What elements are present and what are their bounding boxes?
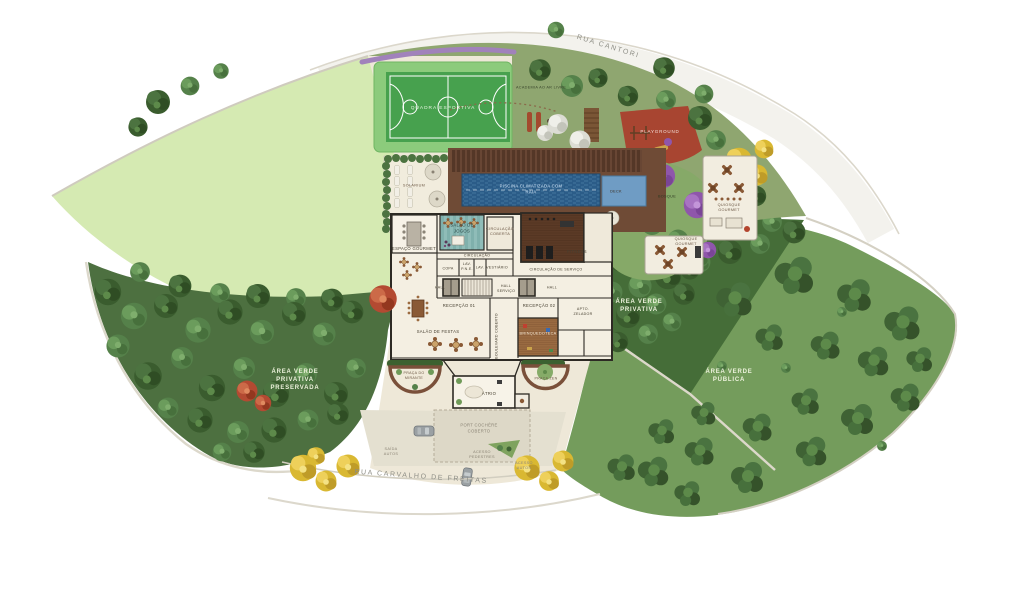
label-reception-1: RECEPÇÃO 01 <box>443 303 476 309</box>
label-deck: DECK <box>610 189 622 194</box>
label-games-room: SALÃO DE JOGOS <box>445 222 479 233</box>
label-reception-2: RECEPÇÃO 02 <box>523 303 556 309</box>
label-gourmet-room: ESPAÇO GOURMET <box>392 246 436 252</box>
label-service-circulation: CIRCULAÇÃO DE SERVIÇO <box>530 268 583 273</box>
label-car-entry: ACESSO AUTOS <box>510 461 538 471</box>
label-hall-right: HALL <box>547 286 557 291</box>
label-green-right-private: ÁREA VERDE PRIVATIVA <box>612 298 666 314</box>
label-sports-court: QUADRA ESPORTIVA <box>411 106 476 112</box>
label-zen-square: PRAÇA ZEN <box>534 377 557 382</box>
label-gourmet-kiosk-upper: QUIOSQUE GOURMET <box>709 203 749 213</box>
label-covered-circulation: CIRCULAÇÃO COBERTA <box>485 227 515 237</box>
label-port-cochere: PORT COCHÈRE COBERTO <box>457 422 501 433</box>
label-atrium: ÁTRIO <box>482 391 496 397</box>
site-plan: RUA CANTORI RUA CARVALHO DE FREITAS ÁREA… <box>0 0 1024 606</box>
label-locker-room: VESTIÁRIO <box>486 266 508 271</box>
label-pool: PISCINA CLIMATIZADA COM RAIA <box>499 183 563 194</box>
left-green-area <box>52 56 401 472</box>
label-covered-boulevard: BOULEVARD COBERTO <box>495 313 500 359</box>
label-car-exit: SAÍDA AUTOS <box>379 447 403 457</box>
label-playground: PLAYGROUND <box>640 129 679 135</box>
label-lookout-square: PRAÇA DO MIRANTE <box>399 371 429 381</box>
label-circulation: CIRCULAÇÃO <box>464 254 491 259</box>
label-gourmet-kiosk-lower: QUIOSQUE GOURMET <box>668 237 704 247</box>
label-pantry: COPA <box>442 267 453 272</box>
label-solarium: SOLARIUM <box>403 183 425 188</box>
label-outdoor-gym: ACADEMIA AO AR LIVRE <box>516 85 566 90</box>
label-party-room: SALÃO DE FESTAS <box>417 329 460 335</box>
label-grove: BOSQUE <box>658 194 676 199</box>
label-playroom: BRINQUEDOTECA <box>519 331 556 336</box>
label-lav-pne: LAV. P.N.E. <box>461 262 474 272</box>
label-green-right-public: ÁREA VERDE PÚBLICA <box>704 368 754 384</box>
label-service-hall: HALL SERVIÇO <box>497 284 515 294</box>
label-lav: LAV. <box>476 266 484 271</box>
label-caretaker-apt: APTO. ZELADOR <box>571 307 595 317</box>
label-pedestrian-entry: ACESSO PEDESTRES <box>465 450 499 460</box>
gourmet-kiosk-upper <box>703 156 757 240</box>
site-plan-graphic <box>0 0 1024 606</box>
label-green-left-preserved: ÁREA VERDE PRIVATIVA PRESERVADA <box>252 368 338 392</box>
label-fitness: FITNESS <box>567 249 587 255</box>
label-hall-left: HALL <box>435 286 445 291</box>
